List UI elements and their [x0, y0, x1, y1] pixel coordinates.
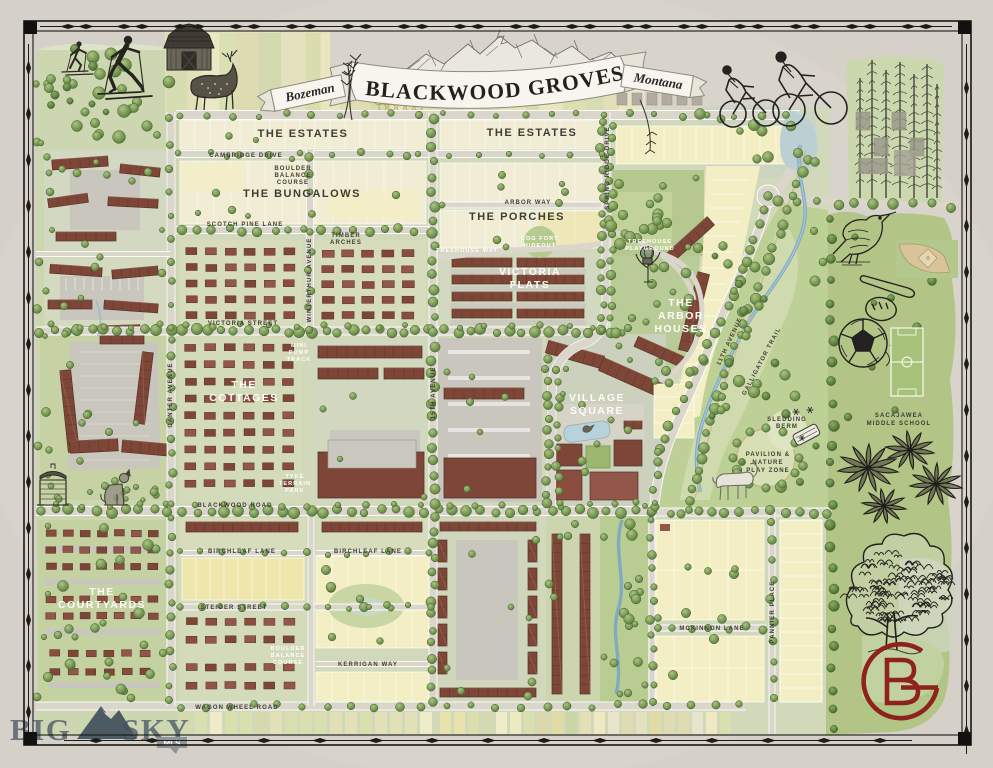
- svg-text:MIDDLE SCHOOL: MIDDLE SCHOOL: [867, 421, 932, 427]
- svg-text:NATURE: NATURE: [752, 460, 783, 466]
- svg-text:KERRIGAN WAY: KERRIGAN WAY: [338, 662, 398, 668]
- svg-text:SPRING RIDGE DRIVE: SPRING RIDGE DRIVE: [605, 126, 611, 209]
- svg-text:COTTAGES: COTTAGES: [209, 392, 279, 404]
- svg-text:VICTORIA STREET: VICTORIA STREET: [208, 321, 278, 327]
- svg-text:THE ESTATES: THE ESTATES: [487, 127, 578, 139]
- svg-text:TRACK: TRACK: [287, 357, 312, 363]
- svg-text:PANNIER PLACE: PANNIER PLACE: [770, 581, 776, 644]
- svg-text:BIG: BIG: [10, 712, 71, 747]
- svg-text:LOG FORT: LOG FORT: [521, 236, 558, 242]
- svg-text:VILLAGE: VILLAGE: [569, 392, 625, 404]
- svg-text:WAGON WHEEL ROAD: WAGON WHEEL ROAD: [195, 705, 279, 711]
- svg-text:ARBOR: ARBOR: [658, 310, 704, 322]
- svg-text:TIMBER: TIMBER: [331, 233, 361, 239]
- svg-text:TREEHOUSE WAY: TREEHOUSE WAY: [436, 248, 498, 254]
- svg-text:COURSE: COURSE: [277, 180, 309, 186]
- svg-text:PLAYGROUND: PLAYGROUND: [625, 246, 675, 252]
- svg-text:STEIGER STREET: STEIGER STREET: [200, 605, 267, 611]
- svg-text:THE ESTATES: THE ESTATES: [258, 128, 349, 140]
- svg-text:BERM: BERM: [776, 424, 798, 430]
- svg-text:SQUARE: SQUARE: [570, 405, 624, 417]
- svg-text:MCKINNON LANE: MCKINNON LANE: [679, 626, 744, 632]
- svg-text:COURSE: COURSE: [273, 660, 303, 666]
- svg-text:THE PORCHES: THE PORCHES: [469, 211, 565, 223]
- svg-text:BALANCE: BALANCE: [271, 653, 306, 659]
- svg-text:SCOTCH PINE LANE: SCOTCH PINE LANE: [207, 222, 284, 228]
- svg-text:THE: THE: [231, 379, 257, 391]
- svg-text:BIRCHLEAF LANE: BIRCHLEAF LANE: [208, 549, 276, 555]
- svg-text:HOUSES: HOUSES: [654, 323, 707, 335]
- svg-text:THE: THE: [89, 586, 115, 598]
- svg-text:ARBOR WAY: ARBOR WAY: [505, 200, 552, 206]
- svg-text:PLAY ZONE: PLAY ZONE: [746, 468, 790, 474]
- svg-text:BLACKWOOD ROAD: BLACKWOOD ROAD: [197, 503, 272, 509]
- svg-text:TYKE: TYKE: [285, 474, 304, 480]
- svg-text:SLEDDING: SLEDDING: [767, 417, 807, 423]
- svg-text:BOULDER: BOULDER: [271, 646, 306, 652]
- svg-text:TERRAIN: TERRAIN: [279, 481, 311, 487]
- svg-text:FLATS: FLATS: [510, 279, 551, 291]
- svg-text:SACAJAWEA: SACAJAWEA: [875, 413, 923, 419]
- svg-text:MINI: MINI: [291, 343, 307, 349]
- svg-text:TREEHOUSE: TREEHOUSE: [628, 239, 672, 245]
- svg-text:ARCHES: ARCHES: [330, 240, 362, 246]
- svg-text:BALANCE: BALANCE: [274, 173, 311, 179]
- svg-text:BIRCHLEAF LANE: BIRCHLEAF LANE: [334, 549, 402, 555]
- svg-text:THE BUNGALOWS: THE BUNGALOWS: [243, 188, 361, 200]
- svg-text:PAVILION &: PAVILION &: [746, 452, 790, 458]
- svg-text:CAMBRIDGE DRIVE: CAMBRIDGE DRIVE: [209, 153, 283, 159]
- svg-text:CANTER AVENUE: CANTER AVENUE: [168, 362, 174, 427]
- svg-text:VICTORIA: VICTORIA: [499, 266, 561, 278]
- svg-text:BOULDER: BOULDER: [274, 166, 311, 172]
- svg-text:HIDEOUT: HIDEOUT: [524, 243, 556, 249]
- svg-text:THE: THE: [668, 297, 694, 309]
- svg-text:COURTYARDS: COURTYARDS: [58, 599, 146, 611]
- svg-text:PARK: PARK: [285, 488, 305, 494]
- svg-text:15TH AVENUE: 15TH AVENUE: [431, 367, 437, 420]
- svg-text:WINTERTHUR AVENUE: WINTERTHUR AVENUE: [307, 237, 313, 322]
- svg-text:PUMP: PUMP: [289, 350, 309, 356]
